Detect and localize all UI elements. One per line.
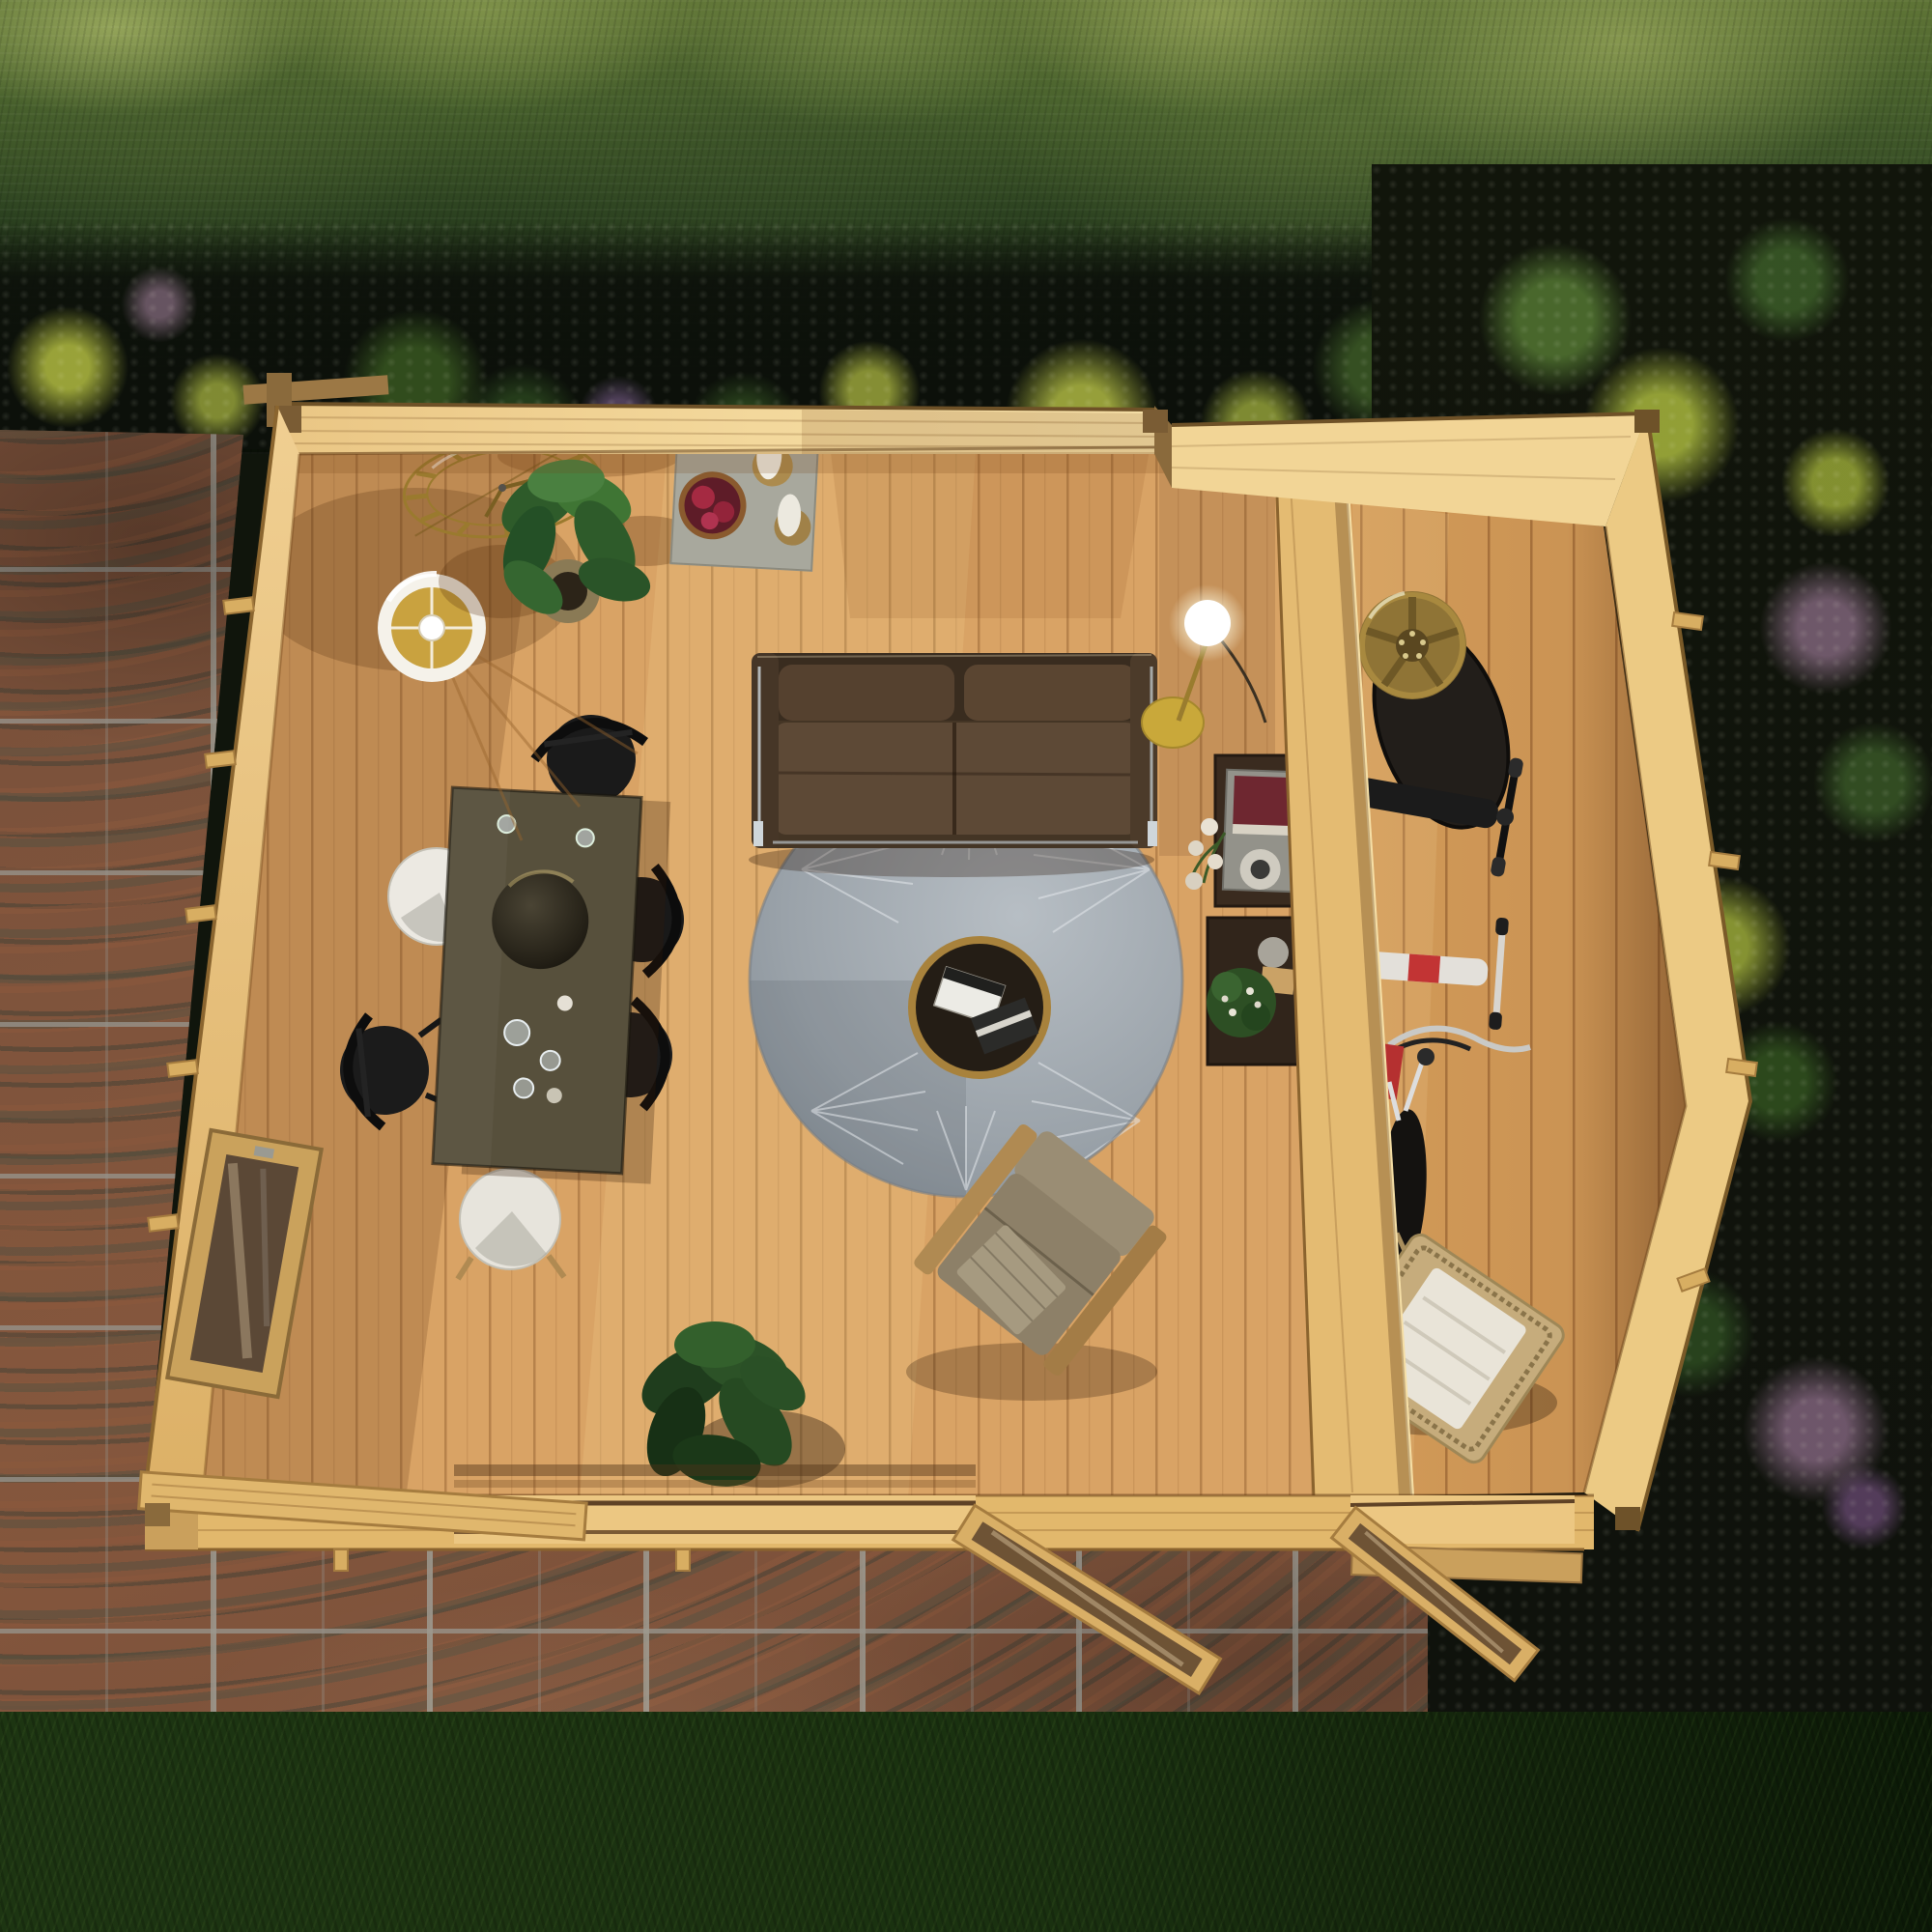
annex-doorway <box>1332 1495 1582 1681</box>
north-wall <box>280 404 1275 473</box>
garden-cabin-render <box>0 0 1932 1932</box>
sofa <box>749 653 1157 877</box>
coffee-table <box>910 938 1049 1077</box>
cabin-overhead-view <box>0 0 1932 1932</box>
plant-small <box>1207 968 1276 1037</box>
dining-table <box>433 787 670 1183</box>
